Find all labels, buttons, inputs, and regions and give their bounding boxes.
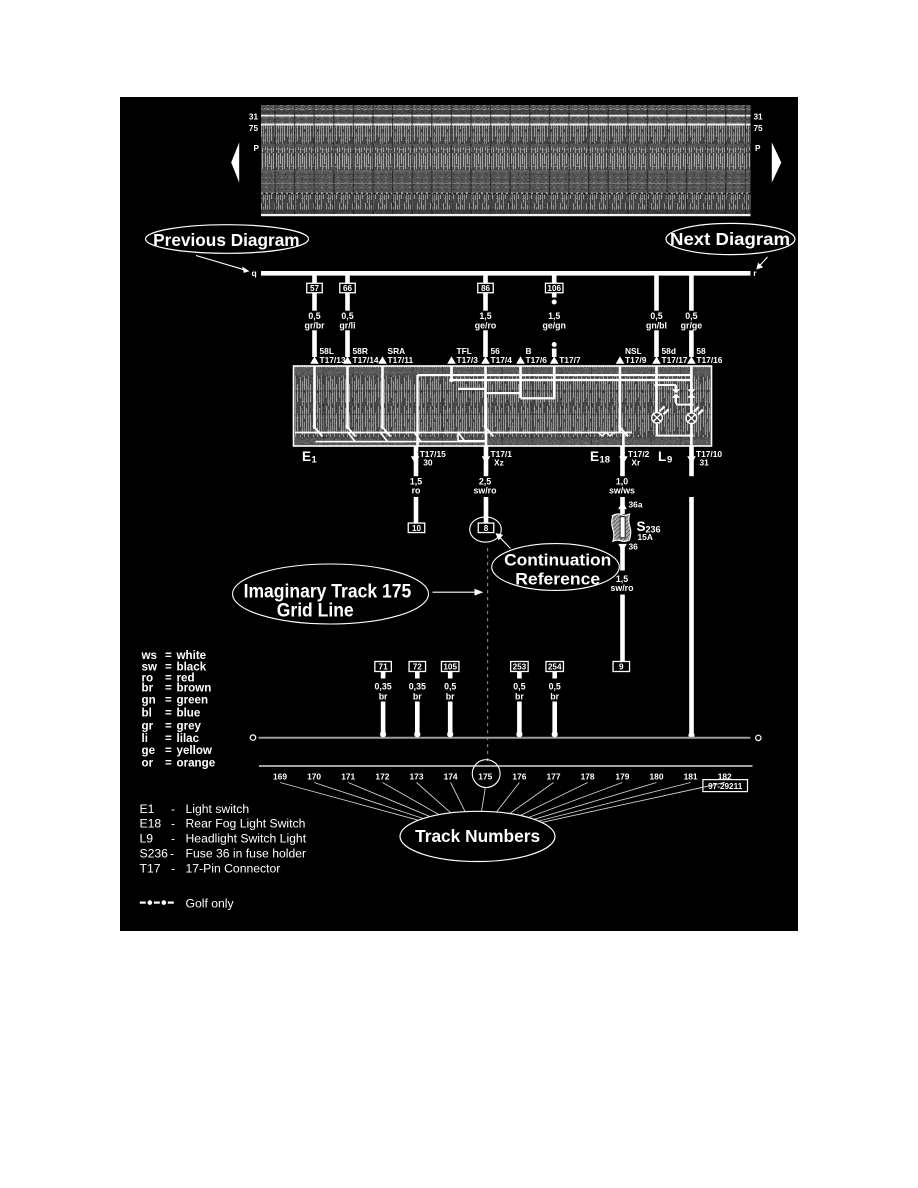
svg-text:Next Diagram: Next Diagram xyxy=(670,229,790,249)
svg-text:71: 71 xyxy=(379,662,389,671)
svg-text:br: br xyxy=(515,692,524,702)
svg-text:br: br xyxy=(413,692,422,702)
svg-text:0,5: 0,5 xyxy=(650,311,662,321)
svg-text:97-29211: 97-29211 xyxy=(708,782,743,791)
svg-text:Xr: Xr xyxy=(631,458,641,468)
svg-text:31: 31 xyxy=(700,458,710,468)
svg-text:T17/16: T17/16 xyxy=(696,355,722,365)
svg-text:0,35: 0,35 xyxy=(409,682,426,692)
svg-text:T17/11: T17/11 xyxy=(388,355,414,365)
svg-text:T17/7: T17/7 xyxy=(559,355,581,365)
svg-text:66: 66 xyxy=(343,284,353,293)
svg-text:0,5: 0,5 xyxy=(513,682,525,692)
svg-text:br: br xyxy=(379,692,388,702)
svg-text:L9: L9 xyxy=(140,832,154,846)
svg-text:178: 178 xyxy=(581,771,595,781)
svg-text:sw/ws: sw/ws xyxy=(609,485,635,495)
svg-text:0,5: 0,5 xyxy=(308,311,320,321)
svg-text:86: 86 xyxy=(481,284,491,293)
svg-text:176: 176 xyxy=(512,771,526,781)
svg-text:T17/3: T17/3 xyxy=(457,355,479,365)
svg-text:Reference: Reference xyxy=(515,569,600,588)
svg-text:31: 31 xyxy=(249,113,259,122)
svg-text:172: 172 xyxy=(375,771,389,781)
svg-text:=: = xyxy=(165,693,172,706)
svg-text:173: 173 xyxy=(410,771,424,781)
svg-text:ge/ro: ge/ro xyxy=(475,320,497,330)
svg-text:1: 1 xyxy=(312,455,318,466)
svg-text:0,35: 0,35 xyxy=(375,682,392,692)
svg-text:57: 57 xyxy=(310,284,320,293)
svg-text:ge: ge xyxy=(142,744,156,757)
svg-text:30: 30 xyxy=(423,458,433,468)
svg-text:18: 18 xyxy=(600,455,611,466)
svg-text:-: - xyxy=(171,832,175,846)
svg-text:L: L xyxy=(658,449,666,464)
svg-text:P: P xyxy=(254,144,260,153)
svg-text:-: - xyxy=(170,846,174,860)
svg-text:0,5: 0,5 xyxy=(549,682,561,692)
svg-text:T17/6: T17/6 xyxy=(526,355,548,365)
svg-text:E: E xyxy=(302,449,311,464)
svg-text:Track Numbers: Track Numbers xyxy=(415,826,540,846)
svg-text:9: 9 xyxy=(619,662,624,671)
svg-text:orange: orange xyxy=(177,757,216,770)
svg-text:gr: gr xyxy=(142,719,154,732)
svg-text:E1: E1 xyxy=(140,802,155,816)
svg-text:180: 180 xyxy=(650,771,664,781)
svg-text:181: 181 xyxy=(684,771,698,781)
svg-text:Previous Diagram: Previous Diagram xyxy=(153,230,300,250)
svg-text:T17/9: T17/9 xyxy=(625,355,647,365)
svg-text:171: 171 xyxy=(341,771,355,781)
svg-text:75: 75 xyxy=(754,124,764,133)
svg-text:blue: blue xyxy=(177,707,201,720)
svg-text:0,5: 0,5 xyxy=(341,311,353,321)
svg-text:T17/13: T17/13 xyxy=(320,355,346,365)
svg-text:0,5: 0,5 xyxy=(685,311,697,321)
svg-text:Headlight Switch Light: Headlight Switch Light xyxy=(186,832,307,846)
svg-text:170: 170 xyxy=(307,771,321,781)
svg-text:169: 169 xyxy=(273,771,287,781)
svg-text:36a: 36a xyxy=(629,500,643,510)
svg-text:105: 105 xyxy=(443,662,457,671)
svg-text:E18: E18 xyxy=(140,816,162,830)
svg-text:-: - xyxy=(171,816,175,830)
svg-text:8: 8 xyxy=(484,524,489,533)
svg-text:=: = xyxy=(165,757,172,770)
svg-text:-: - xyxy=(171,802,175,816)
svg-text:P: P xyxy=(755,144,761,153)
svg-text:E: E xyxy=(590,449,599,464)
svg-text:T17/14: T17/14 xyxy=(353,355,379,365)
svg-text:36: 36 xyxy=(629,542,639,552)
svg-text:Continuation: Continuation xyxy=(504,550,611,569)
svg-text:Rear Fog Light Switch: Rear Fog Light Switch xyxy=(186,816,306,830)
svg-text:sw/ro: sw/ro xyxy=(611,583,635,593)
svg-text:T17/4: T17/4 xyxy=(491,355,513,365)
svg-text:Golf only: Golf only xyxy=(186,896,235,910)
svg-text:S236: S236 xyxy=(140,846,169,860)
svg-text:gr/br: gr/br xyxy=(304,320,325,330)
svg-text:yellow: yellow xyxy=(177,744,213,757)
svg-text:15A: 15A xyxy=(638,532,653,542)
svg-text:br: br xyxy=(550,692,559,702)
svg-text:or: or xyxy=(142,757,154,770)
svg-text:-: - xyxy=(171,861,175,875)
svg-text:75: 75 xyxy=(249,124,259,133)
svg-text:=: = xyxy=(165,732,172,745)
svg-text:lilac: lilac xyxy=(177,732,200,745)
svg-text:grey: grey xyxy=(177,719,202,732)
svg-text:10: 10 xyxy=(412,524,422,533)
svg-text:106: 106 xyxy=(547,284,561,293)
svg-text:Fuse 36 in fuse holder: Fuse 36 in fuse holder xyxy=(186,846,307,860)
svg-text:=: = xyxy=(165,707,172,720)
svg-text:br: br xyxy=(446,692,455,702)
svg-text:gn/bl: gn/bl xyxy=(646,320,667,330)
svg-text:bl: bl xyxy=(142,707,152,720)
svg-text:ro: ro xyxy=(412,485,421,495)
svg-text:T17/17: T17/17 xyxy=(662,355,688,365)
svg-text:0,5: 0,5 xyxy=(444,682,456,692)
svg-text:T17: T17 xyxy=(140,861,161,875)
svg-text:=: = xyxy=(165,719,172,732)
svg-text:li: li xyxy=(142,732,148,745)
svg-text:q: q xyxy=(252,268,257,278)
svg-text:17-Pin Connector: 17-Pin Connector xyxy=(186,861,281,875)
svg-text:Xz: Xz xyxy=(494,458,504,468)
svg-text:green: green xyxy=(177,693,209,706)
svg-text:9: 9 xyxy=(667,455,672,466)
svg-text:177: 177 xyxy=(547,771,561,781)
svg-text:1,5: 1,5 xyxy=(479,311,491,321)
svg-text:175: 175 xyxy=(478,771,492,781)
svg-text:174: 174 xyxy=(444,771,458,781)
svg-text:ge/gn: ge/gn xyxy=(542,320,565,330)
svg-text:gn: gn xyxy=(142,693,156,706)
svg-text:=: = xyxy=(165,744,172,757)
svg-text:31: 31 xyxy=(754,113,764,122)
svg-text:1,5: 1,5 xyxy=(548,311,560,321)
svg-text:sw/ro: sw/ro xyxy=(474,485,498,495)
svg-text:gr/ge: gr/ge xyxy=(681,320,703,330)
svg-text:Imaginary Track 175: Imaginary Track 175 xyxy=(244,581,412,602)
svg-text:253: 253 xyxy=(513,662,527,671)
svg-text:Grid Line: Grid Line xyxy=(277,601,354,622)
svg-text:72: 72 xyxy=(413,662,423,671)
svg-text:gr/li: gr/li xyxy=(339,320,355,330)
svg-text:179: 179 xyxy=(615,771,629,781)
svg-text:254: 254 xyxy=(548,662,562,671)
svg-text:Light switch: Light switch xyxy=(186,802,250,816)
